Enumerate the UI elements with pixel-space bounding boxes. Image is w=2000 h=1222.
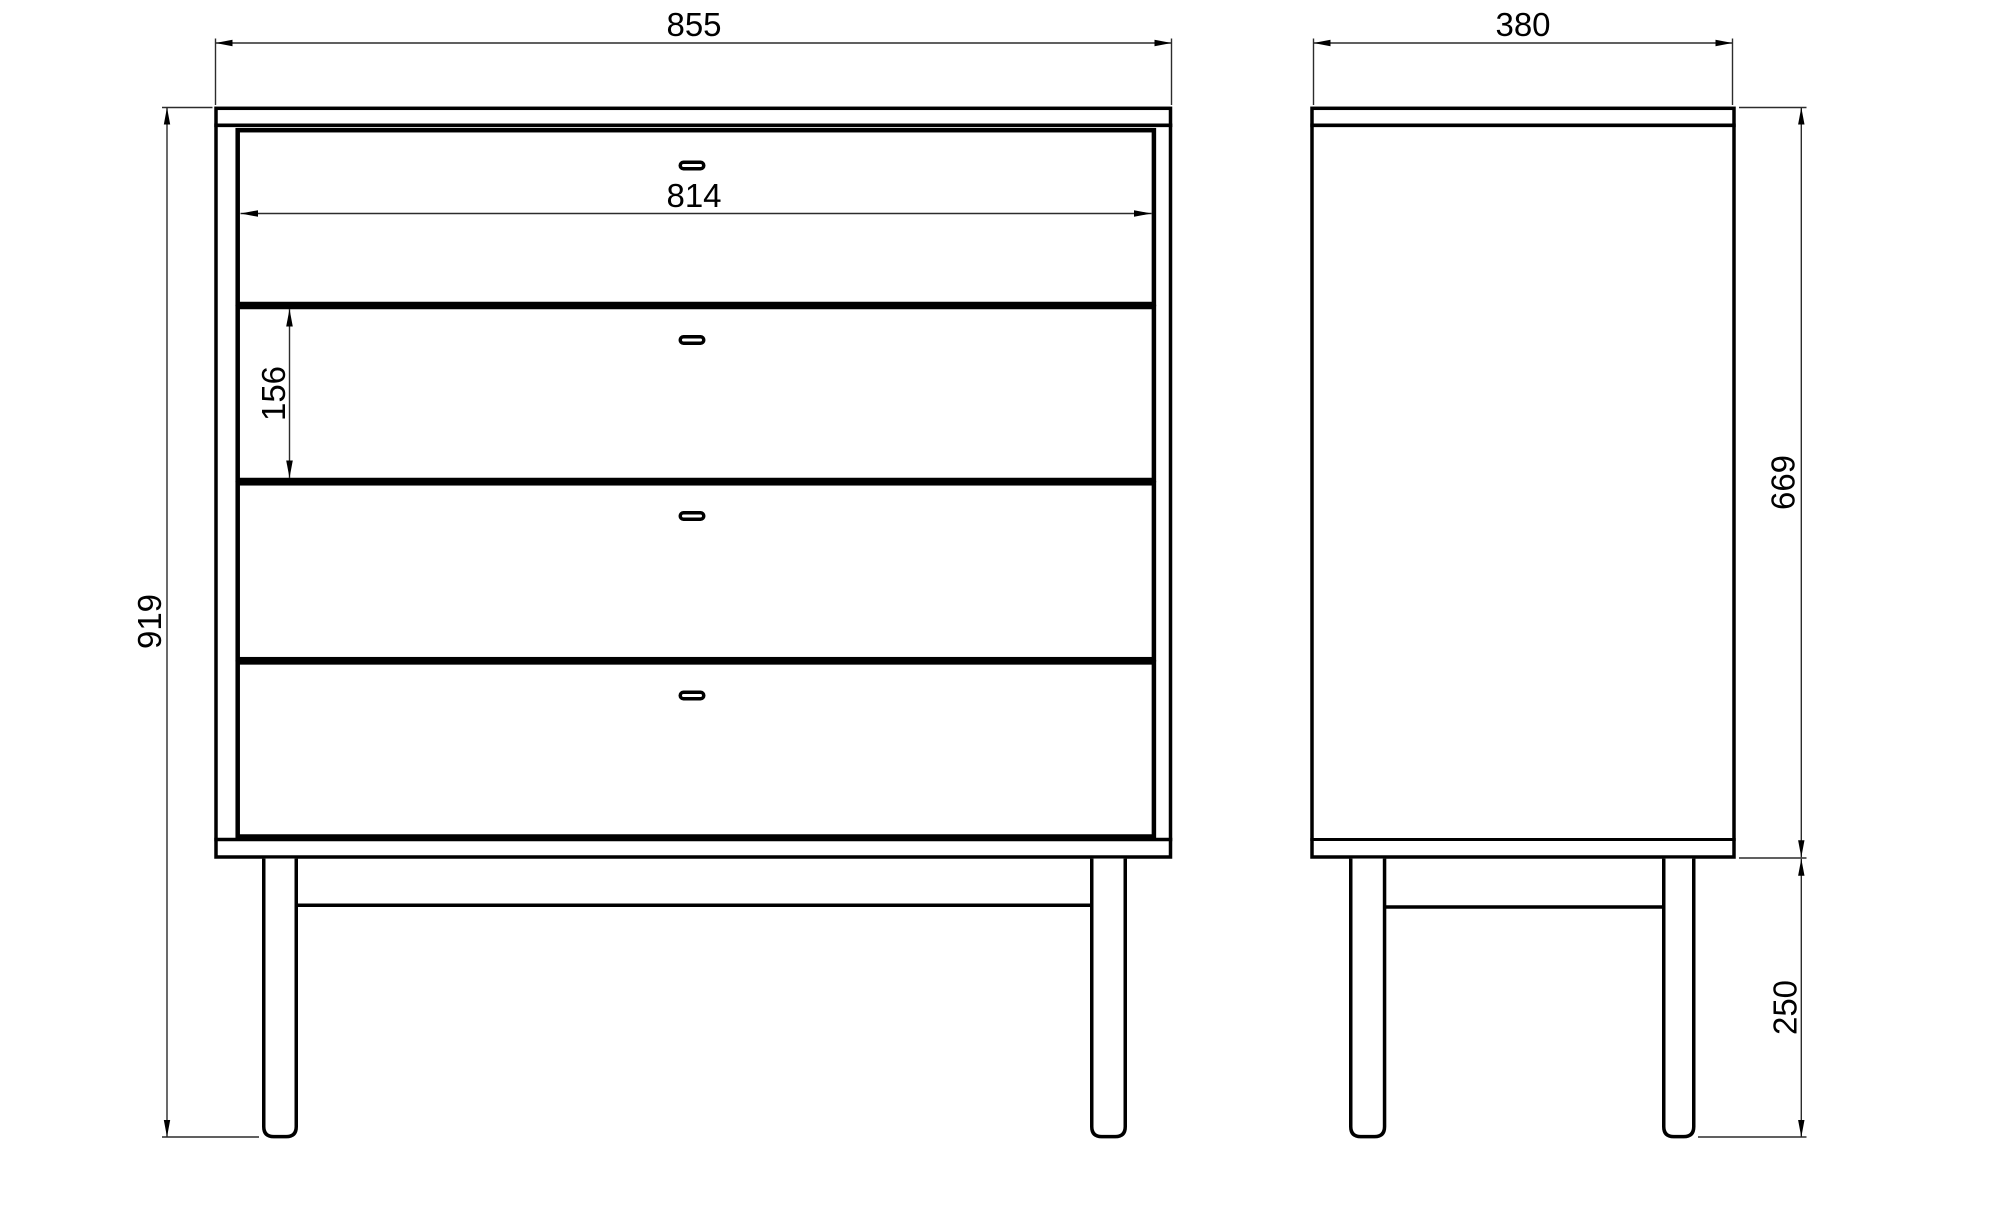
svg-text:855: 855 <box>666 6 721 43</box>
svg-text:380: 380 <box>1495 6 1550 43</box>
svg-text:250: 250 <box>1767 980 1804 1035</box>
svg-text:156: 156 <box>255 366 292 421</box>
svg-text:669: 669 <box>1765 455 1802 510</box>
svg-text:919: 919 <box>131 594 168 649</box>
svg-text:814: 814 <box>666 177 721 214</box>
